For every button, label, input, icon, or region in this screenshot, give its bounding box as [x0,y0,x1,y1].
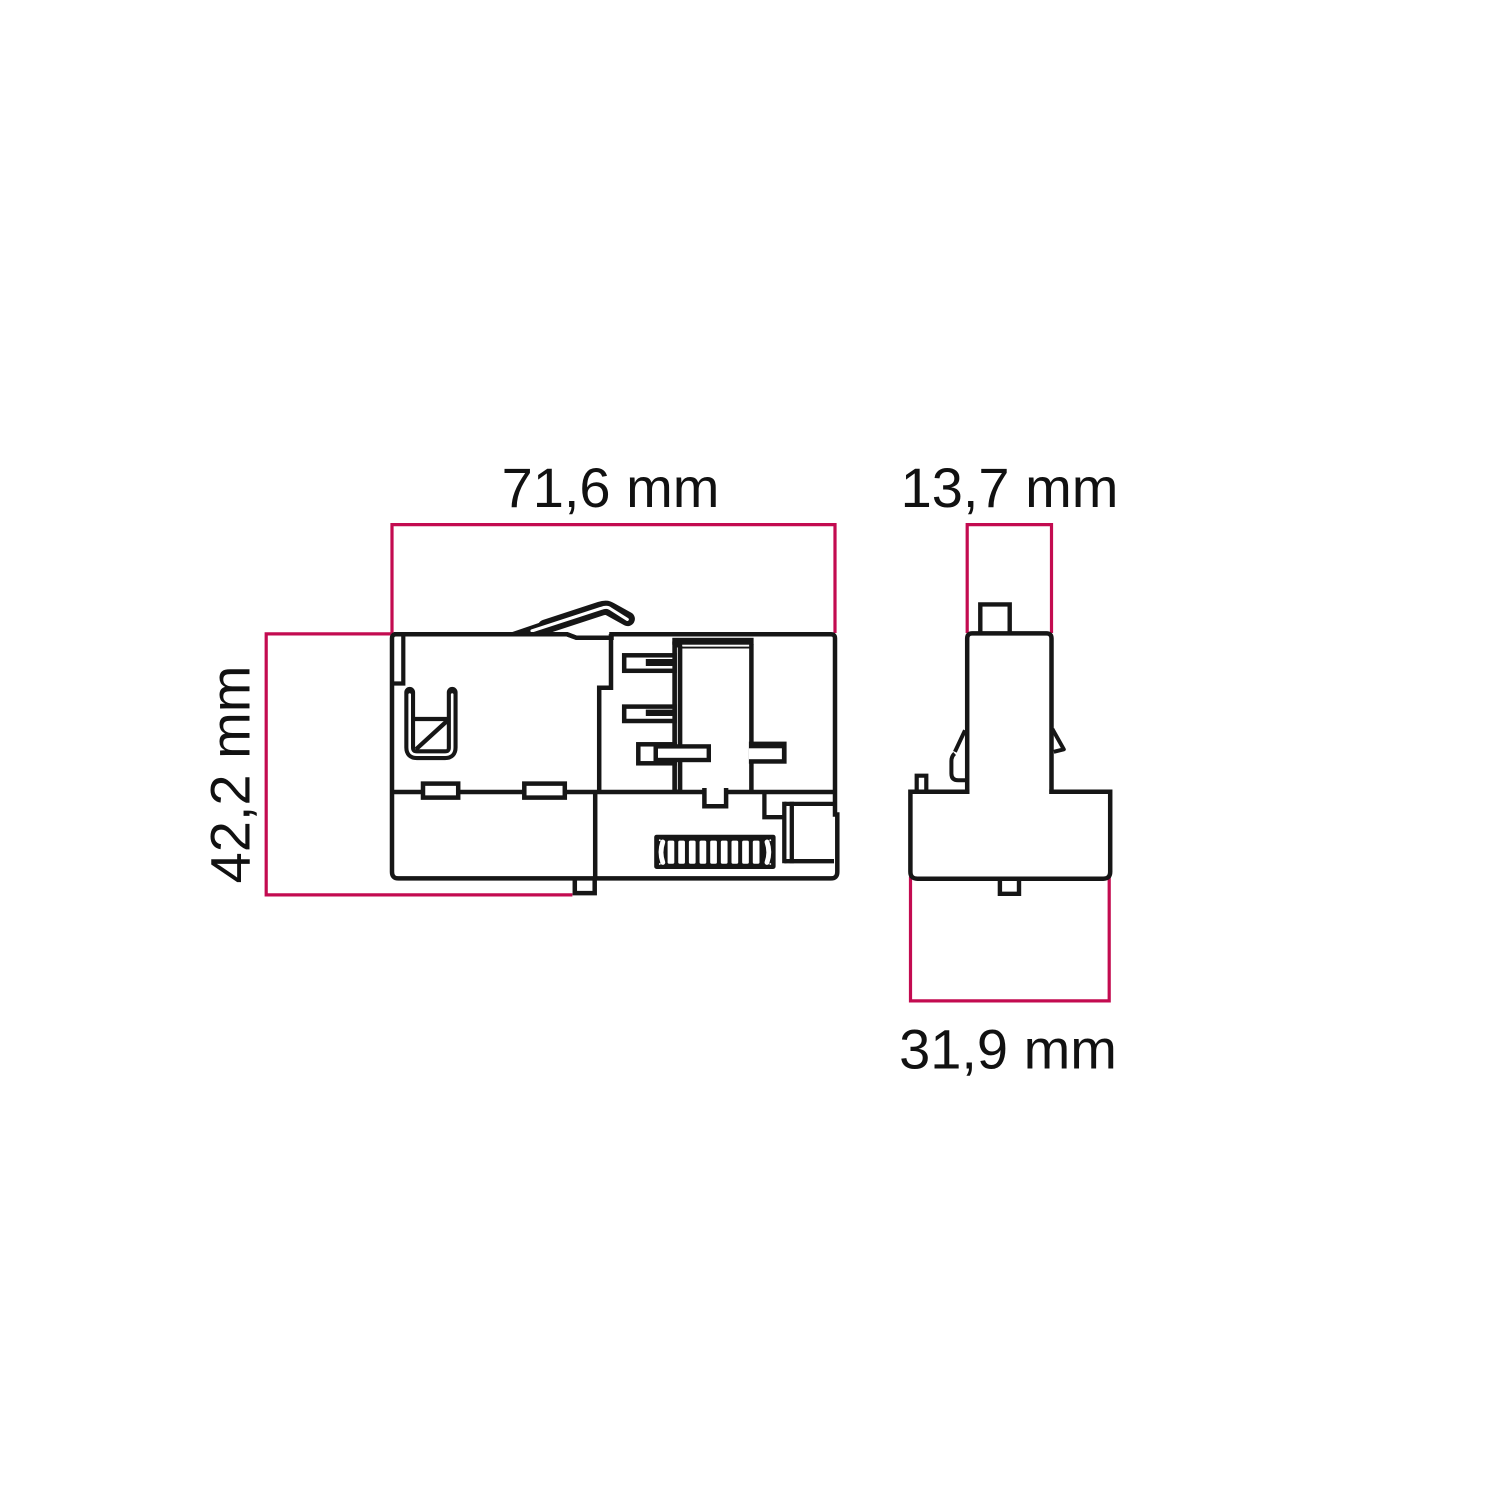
svg-text:42,2 mm: 42,2 mm [199,666,262,884]
svg-text:13,7 mm: 13,7 mm [901,456,1119,519]
svg-text:71,6 mm: 71,6 mm [502,456,720,519]
svg-text:31,9 mm: 31,9 mm [899,1018,1117,1081]
